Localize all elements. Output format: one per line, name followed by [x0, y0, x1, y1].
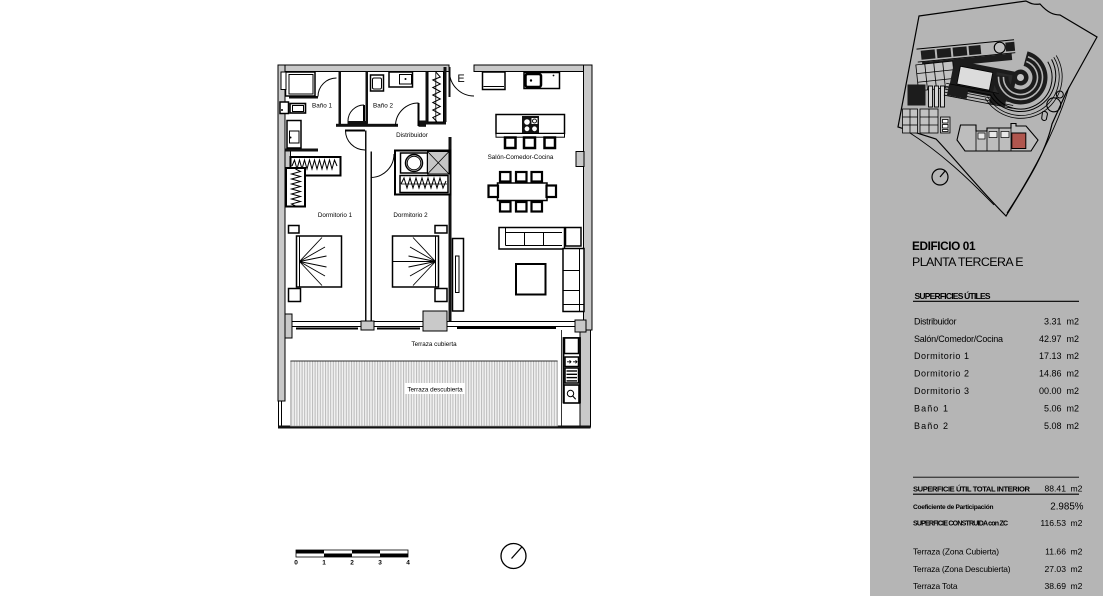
svg-text:Baño 2: Baño 2 [914, 421, 948, 431]
svg-text:14.86: 14.86 [1039, 369, 1062, 379]
svg-text:3.31: 3.31 [1044, 316, 1062, 326]
svg-text:Distribuidor: Distribuidor [914, 316, 957, 326]
svg-text:0: 0 [294, 560, 298, 567]
svg-text:SUPERFICIE CONSTRUIDA con ZC: SUPERFICIE CONSTRUIDA con ZC [913, 521, 1008, 528]
svg-text:38.69: 38.69 [1044, 581, 1066, 591]
svg-text:Dormitorio 2: Dormitorio 2 [393, 212, 428, 219]
svg-text:Terraza cubierta: Terraza cubierta [411, 341, 457, 348]
svg-text:Terraza (Zona Cubierta): Terraza (Zona Cubierta) [913, 546, 999, 556]
svg-text:Terraza descubierta: Terraza descubierta [407, 387, 463, 394]
svg-text:27.03: 27.03 [1044, 564, 1066, 574]
svg-text:m2: m2 [1067, 403, 1080, 413]
svg-text:1: 1 [322, 560, 326, 567]
svg-text:m2: m2 [1067, 351, 1080, 361]
svg-text:EDIFICIO 01: EDIFICIO 01 [912, 239, 976, 253]
svg-text:2.985%: 2.985% [1050, 501, 1084, 512]
svg-text:Dormitorio 1: Dormitorio 1 [318, 212, 353, 219]
svg-text:Baño 1: Baño 1 [312, 103, 332, 110]
svg-text:2: 2 [350, 560, 354, 567]
svg-text:SUPERFICIES ÚTILES: SUPERFICIES ÚTILES [915, 290, 991, 301]
svg-text:m2: m2 [1071, 546, 1083, 556]
svg-text:Salón-Comedor-Cocina: Salón-Comedor-Cocina [488, 154, 554, 161]
svg-text:m2: m2 [1071, 564, 1083, 574]
svg-text:m2: m2 [1071, 483, 1083, 493]
svg-text:E: E [457, 73, 464, 85]
svg-text:4: 4 [406, 560, 410, 567]
svg-text:Coeficiente de Participación: Coeficiente de Participación [913, 504, 994, 511]
svg-text:Dormitorio 3: Dormitorio 3 [914, 386, 969, 396]
svg-text:m2: m2 [1071, 581, 1083, 591]
svg-text:m2: m2 [1067, 421, 1080, 431]
svg-text:m2: m2 [1071, 518, 1083, 528]
svg-text:Dormitorio 2: Dormitorio 2 [914, 369, 969, 379]
svg-text:116.53: 116.53 [1040, 518, 1066, 528]
svg-text:88.41: 88.41 [1044, 483, 1066, 493]
svg-text:17.13: 17.13 [1039, 351, 1062, 361]
svg-text:Distribuidor: Distribuidor [396, 132, 428, 139]
svg-text:5.08: 5.08 [1044, 421, 1062, 431]
svg-text:m2: m2 [1067, 334, 1080, 344]
svg-text:Terraza (Zona Descubierta): Terraza (Zona Descubierta) [913, 564, 1011, 574]
svg-text:Dormitorio 1: Dormitorio 1 [914, 351, 969, 361]
svg-text:00.00: 00.00 [1039, 386, 1062, 396]
svg-text:42.97: 42.97 [1039, 334, 1062, 344]
svg-text:11.66: 11.66 [1045, 546, 1066, 556]
svg-text:Salón/Comedor/Cocina: Salón/Comedor/Cocina [914, 334, 1003, 344]
svg-text:Baño 1: Baño 1 [914, 403, 948, 413]
svg-text:m2: m2 [1067, 386, 1080, 396]
svg-text:Terraza Tota: Terraza Tota [913, 581, 958, 591]
svg-text:SUPERFICIE ÚTIL TOTAL INTERIOR: SUPERFICIE ÚTIL TOTAL INTERIOR [913, 484, 1031, 493]
svg-text:Baño 2: Baño 2 [373, 103, 393, 110]
svg-text:5.06: 5.06 [1044, 403, 1062, 413]
svg-text:m2: m2 [1067, 316, 1080, 326]
svg-text:PLANTA TERCERA E: PLANTA TERCERA E [912, 255, 1024, 269]
svg-text:m2: m2 [1067, 369, 1080, 379]
svg-text:3: 3 [378, 560, 382, 567]
